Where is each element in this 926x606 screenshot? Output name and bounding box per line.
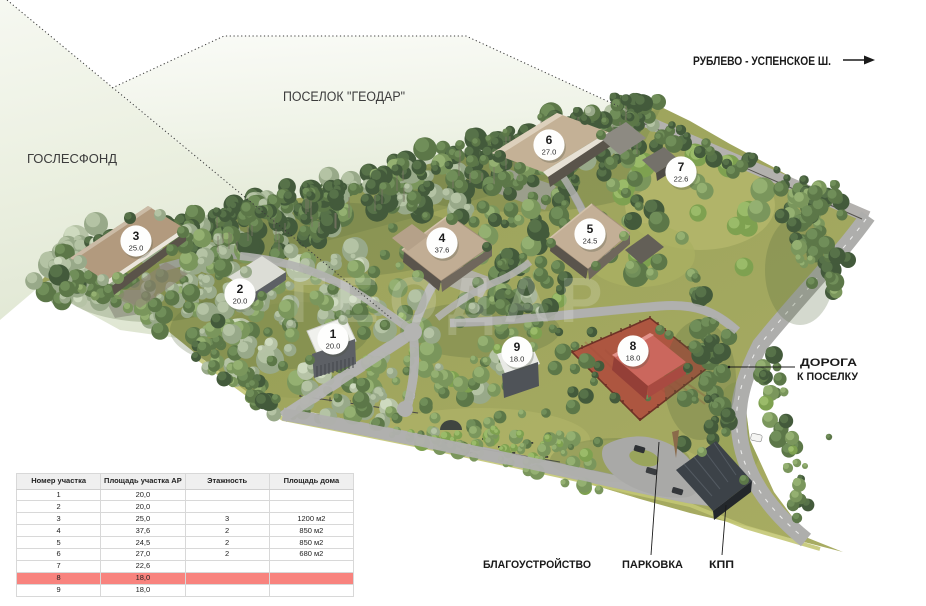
svg-text:20.0: 20.0 — [326, 342, 341, 351]
svg-text:27.0: 27.0 — [542, 148, 557, 157]
svg-text:18.0: 18.0 — [510, 355, 525, 364]
svg-text:ГОСЛЕСФОНД: ГОСЛЕСФОНД — [27, 151, 117, 166]
svg-text:ПАРКОВКА: ПАРКОВКА — [622, 559, 683, 571]
svg-text:7: 7 — [678, 160, 685, 174]
svg-text:ПОСЕЛОК "ГЕОДАР": ПОСЕЛОК "ГЕОДАР" — [283, 89, 405, 104]
svg-text:6: 6 — [546, 133, 553, 147]
svg-text:2: 2 — [237, 282, 244, 296]
svg-text:КПП: КПП — [709, 559, 734, 571]
svg-text:К ПОСЕЛКУ: К ПОСЕЛКУ — [797, 371, 858, 383]
svg-text:РУБЛЕВО - УСПЕНСКОЕ Ш.: РУБЛЕВО - УСПЕНСКОЕ Ш. — [693, 56, 831, 68]
svg-text:20.0: 20.0 — [233, 297, 248, 306]
svg-text:8: 8 — [630, 339, 637, 353]
svg-text:ДОРОГА: ДОРОГА — [800, 357, 857, 369]
svg-text:4: 4 — [439, 231, 446, 245]
svg-text:22.6: 22.6 — [674, 175, 689, 184]
svg-text:БЛАГОУСТРОЙСТВО: БЛАГОУСТРОЙСТВО — [483, 558, 591, 571]
svg-text:3: 3 — [133, 229, 140, 243]
svg-text:9: 9 — [514, 340, 521, 354]
svg-text:24.5: 24.5 — [583, 237, 598, 246]
svg-text:5: 5 — [587, 222, 594, 236]
svg-text:37.6: 37.6 — [435, 246, 450, 255]
svg-text:25.0: 25.0 — [129, 244, 144, 253]
svg-text:1: 1 — [330, 327, 337, 341]
svg-text:18.0: 18.0 — [626, 354, 641, 363]
